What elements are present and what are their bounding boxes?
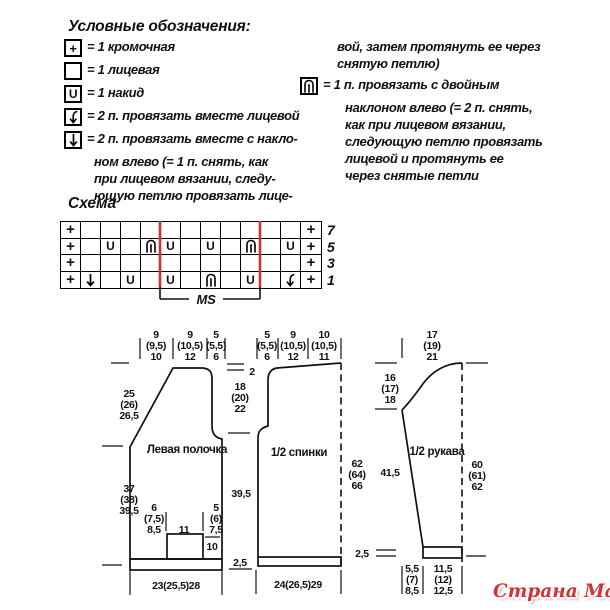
chart-cell-empty [201, 255, 221, 272]
svg-text:(10,5): (10,5) [280, 340, 306, 352]
svg-text:23(25,5)28: 23(25,5)28 [152, 580, 200, 592]
svg-text:39,5: 39,5 [119, 505, 139, 517]
chart-cell-empty [181, 255, 201, 272]
legend-item-text: = 2 п. провязать вместе с накло- [87, 130, 298, 147]
legend-title: Условные обозначения: [68, 18, 251, 36]
chart-cell-cdd [241, 239, 261, 256]
chart-cell-empty [221, 255, 241, 272]
chart-cell-empty [261, 239, 281, 256]
chart-cell-empty [241, 255, 261, 272]
chart-cell-yo: U [241, 272, 261, 289]
legend-item-text-cont: через снятые петли [300, 167, 543, 184]
chart-cell-yo: U [121, 272, 141, 289]
svg-text:2: 2 [249, 366, 255, 378]
chart-cell-edge: + [301, 222, 321, 239]
chart-cell-edge: + [301, 255, 321, 272]
svg-text:(6): (6) [210, 513, 222, 525]
chart-cell-edge: + [301, 239, 321, 256]
back-piece-label: 1/2 спинки [271, 447, 328, 459]
legend-item-text: = 1 лицевая [87, 61, 159, 78]
svg-text:24(26,5)29: 24(26,5)29 [274, 579, 322, 591]
svg-text:(9,5): (9,5) [146, 340, 166, 352]
sleeve-measurements: 17 (19) 21 16 (17) 18 41,5 60 (61) 62 2,… [355, 329, 486, 597]
legend-item-text-cont: ном влево (= 1 п. снять, как [64, 153, 299, 170]
svg-text:62: 62 [351, 458, 363, 470]
svg-text:11: 11 [319, 351, 330, 363]
svg-text:21: 21 [426, 351, 438, 363]
front-outline [130, 368, 222, 570]
sleeve-cuff [423, 547, 462, 558]
chart-cell-empty [121, 222, 141, 239]
svg-text:12: 12 [287, 351, 299, 363]
chart-cell-empty [161, 255, 181, 272]
svg-text:(7): (7) [406, 574, 418, 586]
svg-text:10: 10 [206, 541, 218, 553]
chart-cell-cdd [201, 272, 221, 289]
chart-cell-empty [261, 222, 281, 239]
knit-stitch-icon [64, 62, 82, 80]
svg-text:5: 5 [327, 239, 335, 255]
chart-grid: +++UUUU++++UUU+ [60, 221, 322, 289]
legend-item-text-cont: лицевой и протянуть ее [300, 150, 543, 167]
svg-text:8,5: 8,5 [147, 524, 161, 536]
legend-left-column: + = 1 кромочная = 1 лицевая U = 1 накид … [64, 38, 299, 204]
chart-cell-empty [181, 222, 201, 239]
chart-cell-empty [101, 222, 121, 239]
piece-front: 9 (9,5) 10 9 (10,5) 12 5 (5,5) 6 25 (26)… [102, 329, 228, 595]
chart-cell-empty [141, 272, 161, 289]
svg-text:18: 18 [234, 381, 246, 393]
site-watermark: Страна Мам [493, 581, 610, 602]
legend-item-k2tog: = 2 п. провязать вместе лицевой [64, 107, 299, 126]
chart-cell-edge: + [61, 239, 81, 256]
front-hem-band [130, 559, 222, 570]
chart-cell-edge: + [61, 255, 81, 272]
svg-text:41,5: 41,5 [380, 467, 400, 479]
svg-text:(64): (64) [348, 469, 365, 481]
chart-cell-edge: + [61, 222, 81, 239]
legend-item-text: = 2 п. провязать вместе лицевой [87, 107, 299, 124]
chart-cell-cdd [141, 239, 161, 256]
svg-text:22: 22 [234, 403, 246, 415]
chart-cell-empty [81, 222, 101, 239]
ssk-icon [64, 131, 82, 149]
chart-cell-yo: U [101, 239, 121, 256]
svg-text:37: 37 [123, 483, 135, 495]
legend-item-text-cont: как при лицевом вязании, [300, 116, 543, 133]
chart-cell-yo: U [281, 239, 301, 256]
svg-text:(10,5): (10,5) [177, 340, 203, 352]
legend-item-text: = 1 кромочная [87, 38, 175, 55]
svg-text:6: 6 [151, 502, 157, 514]
legend-item-text: = 1 п. провязать с двойным [323, 76, 499, 93]
legend-item-text-cont: снятую петлю) [300, 55, 543, 72]
svg-text:(38): (38) [120, 494, 137, 506]
chart-cell-edge: + [61, 272, 81, 289]
chart-cell-empty [281, 222, 301, 239]
legend-item-edge: + = 1 кромочная [64, 38, 299, 57]
chart-cell-empty [241, 222, 261, 239]
svg-text:6: 6 [264, 351, 270, 363]
chart-cell-empty [221, 239, 241, 256]
front-measurements: 9 (9,5) 10 9 (10,5) 12 5 (5,5) 6 25 (26)… [119, 329, 228, 592]
chart-cell-edge: + [301, 272, 321, 289]
svg-text:3: 3 [327, 255, 335, 271]
svg-text:7: 7 [327, 222, 336, 238]
chart-cell-yo: U [201, 239, 221, 256]
chart-cell-empty [81, 239, 101, 256]
back-measurements: 2 5 (5,5) 6 9 (10,5) 12 10 (10,5) 11 18 … [231, 329, 369, 591]
chart-cell-empty [101, 255, 121, 272]
svg-text:9: 9 [153, 329, 159, 341]
svg-text:17: 17 [426, 329, 438, 341]
svg-text:(61): (61) [468, 470, 485, 482]
svg-text:5: 5 [213, 502, 219, 514]
legend-item-yarnover: U = 1 накид [64, 84, 299, 103]
legend-item-text: = 1 накид [87, 84, 144, 101]
pattern-page: Условные обозначения: + = 1 кромочная = … [0, 0, 610, 610]
chart-cell-empty [181, 239, 201, 256]
repeat-label: MS [197, 292, 217, 307]
chart-title: Схема [68, 195, 116, 213]
svg-text:(5,5): (5,5) [206, 340, 226, 352]
svg-text:(7,5): (7,5) [144, 513, 164, 525]
chart-cell-empty [161, 222, 181, 239]
svg-text:2,5: 2,5 [233, 557, 247, 569]
sleeve-piece-label: 1/2 рукава [410, 446, 466, 458]
svg-text:(20): (20) [231, 392, 248, 404]
sleeve-outline [402, 363, 462, 558]
yarn-over-icon: U [64, 85, 82, 103]
svg-text:7,5: 7,5 [209, 524, 223, 536]
svg-text:5: 5 [213, 329, 219, 341]
chart-cell-empty [121, 255, 141, 272]
edge-stitch-icon: + [64, 39, 82, 57]
chart-cell-empty [141, 255, 161, 272]
chart-cell-yo: U [161, 272, 181, 289]
piece-sleeve: 17 (19) 21 16 (17) 18 41,5 60 (61) 62 2,… [355, 329, 488, 597]
front-pocket [167, 534, 203, 559]
svg-text:62: 62 [471, 481, 483, 493]
chart-cell-empty [81, 255, 101, 272]
svg-text:25: 25 [123, 388, 135, 400]
chart-cell-k2tog [281, 272, 301, 289]
svg-text:12,5: 12,5 [433, 585, 453, 597]
back-hem-band [258, 557, 341, 566]
svg-text:(19): (19) [423, 340, 440, 352]
chart-cell-empty [261, 255, 281, 272]
svg-text:8,5: 8,5 [405, 585, 419, 597]
chart-cell-empty [101, 272, 121, 289]
svg-text:10: 10 [150, 351, 162, 363]
legend-item-ssk: = 2 п. провязать вместе с накло- [64, 130, 299, 149]
svg-text:(12): (12) [434, 574, 451, 586]
svg-text:(26): (26) [120, 399, 137, 411]
back-ticks [227, 338, 396, 594]
chart-cell-empty [221, 272, 241, 289]
legend-item-knit: = 1 лицевая [64, 61, 299, 80]
back-outline [258, 363, 341, 566]
svg-text:(10,5): (10,5) [311, 340, 337, 352]
svg-text:5,5: 5,5 [405, 563, 419, 575]
double-decrease-icon [300, 77, 318, 95]
svg-text:6: 6 [213, 351, 219, 363]
chart-cell-empty [201, 222, 221, 239]
svg-text:(17): (17) [381, 383, 398, 395]
chart-cell-empty [281, 255, 301, 272]
chart-cell-empty [181, 272, 201, 289]
chart-cell-yo: U [161, 239, 181, 256]
svg-text:2,5: 2,5 [355, 548, 369, 560]
legend-item-text-cont: вой, затем протянуть ее через [300, 38, 543, 55]
legend-item-text-cont: при лицевом вязании, следу- [64, 170, 299, 187]
chart-cell-empty [121, 239, 141, 256]
k2tog-icon [64, 108, 82, 126]
svg-text:16: 16 [384, 372, 396, 384]
svg-text:11,5: 11,5 [434, 563, 453, 575]
legend-item-cdd: = 1 п. провязать с двойным [300, 76, 543, 95]
chart-cell-ssk [81, 272, 101, 289]
svg-text:26,5: 26,5 [119, 410, 139, 422]
svg-text:5: 5 [264, 329, 270, 341]
svg-text:10: 10 [318, 329, 330, 341]
chart-row-numbers: 7 5 3 1 [327, 222, 336, 288]
chart-cell-empty [261, 272, 281, 289]
legend-item-text-cont: наклоном влево (= 2 п. снять, [300, 99, 543, 116]
svg-text:18: 18 [384, 394, 396, 406]
svg-text:9: 9 [187, 329, 193, 341]
svg-text:39,5: 39,5 [231, 488, 251, 500]
chart-cell-empty [141, 222, 161, 239]
svg-text:66: 66 [351, 480, 363, 492]
sleeve-ticks [375, 338, 488, 594]
svg-text:9: 9 [290, 329, 296, 341]
svg-text:12: 12 [184, 351, 196, 363]
svg-text:11: 11 [179, 524, 190, 536]
front-ticks [102, 338, 225, 595]
svg-text:1: 1 [327, 272, 335, 288]
svg-text:(5,5): (5,5) [257, 340, 277, 352]
legend-item-text-cont: следующую петлю провязать [300, 133, 543, 150]
legend-right-column: вой, затем протянуть ее через снятую пет… [300, 38, 543, 184]
front-piece-label: Левая полочка [147, 444, 228, 456]
svg-text:60: 60 [471, 459, 483, 471]
piece-back: 2 5 (5,5) 6 9 (10,5) 12 10 (10,5) 11 18 … [227, 329, 396, 594]
chart-cell-empty [221, 222, 241, 239]
